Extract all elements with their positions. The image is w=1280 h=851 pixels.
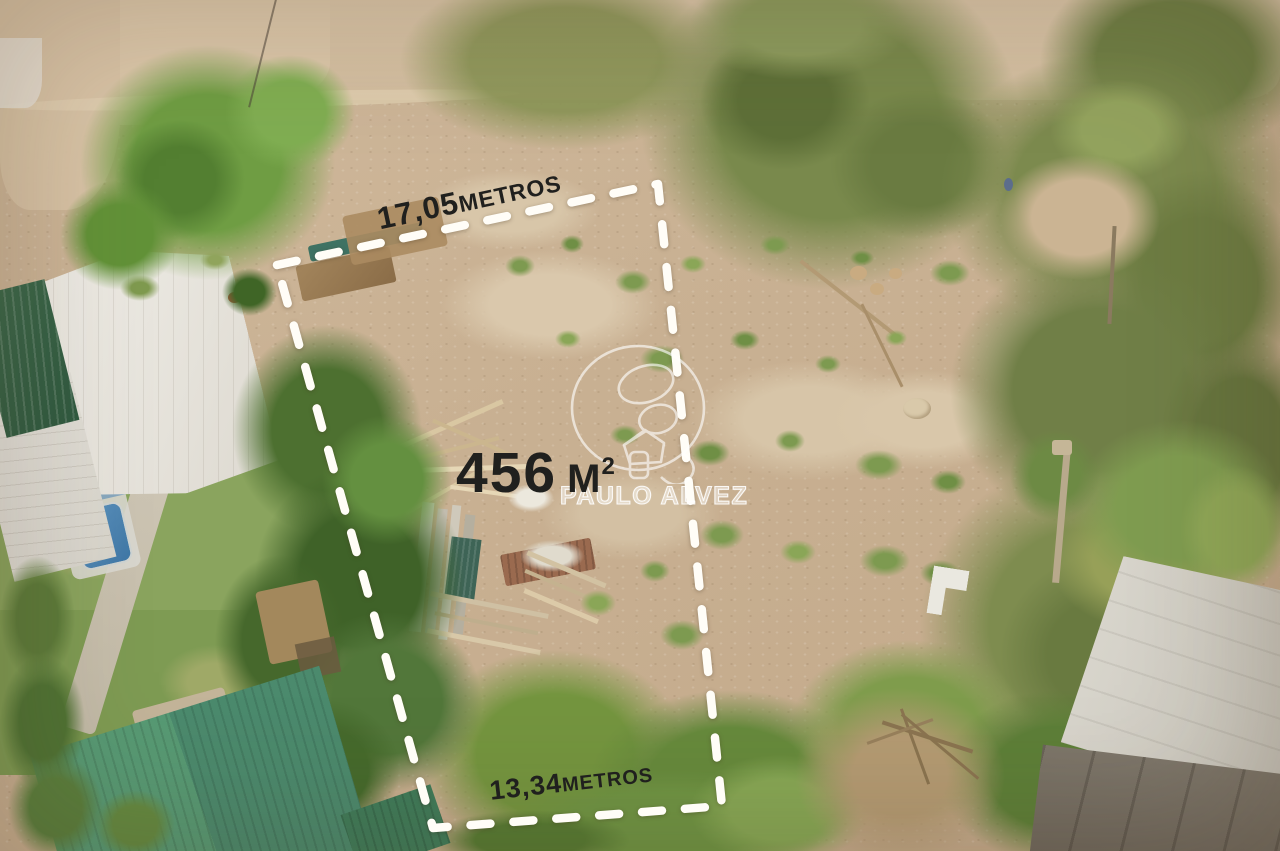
area-label: 456M2 bbox=[456, 440, 615, 506]
area-unit: M bbox=[567, 457, 600, 501]
area-value: 456 bbox=[456, 441, 557, 505]
area-exponent: 2 bbox=[601, 453, 614, 480]
aerial-photo-canvas: 17,05METROS 13,34METROS 456M2 PAULO ALVE… bbox=[0, 0, 1280, 851]
logo-eye-large bbox=[614, 358, 678, 410]
